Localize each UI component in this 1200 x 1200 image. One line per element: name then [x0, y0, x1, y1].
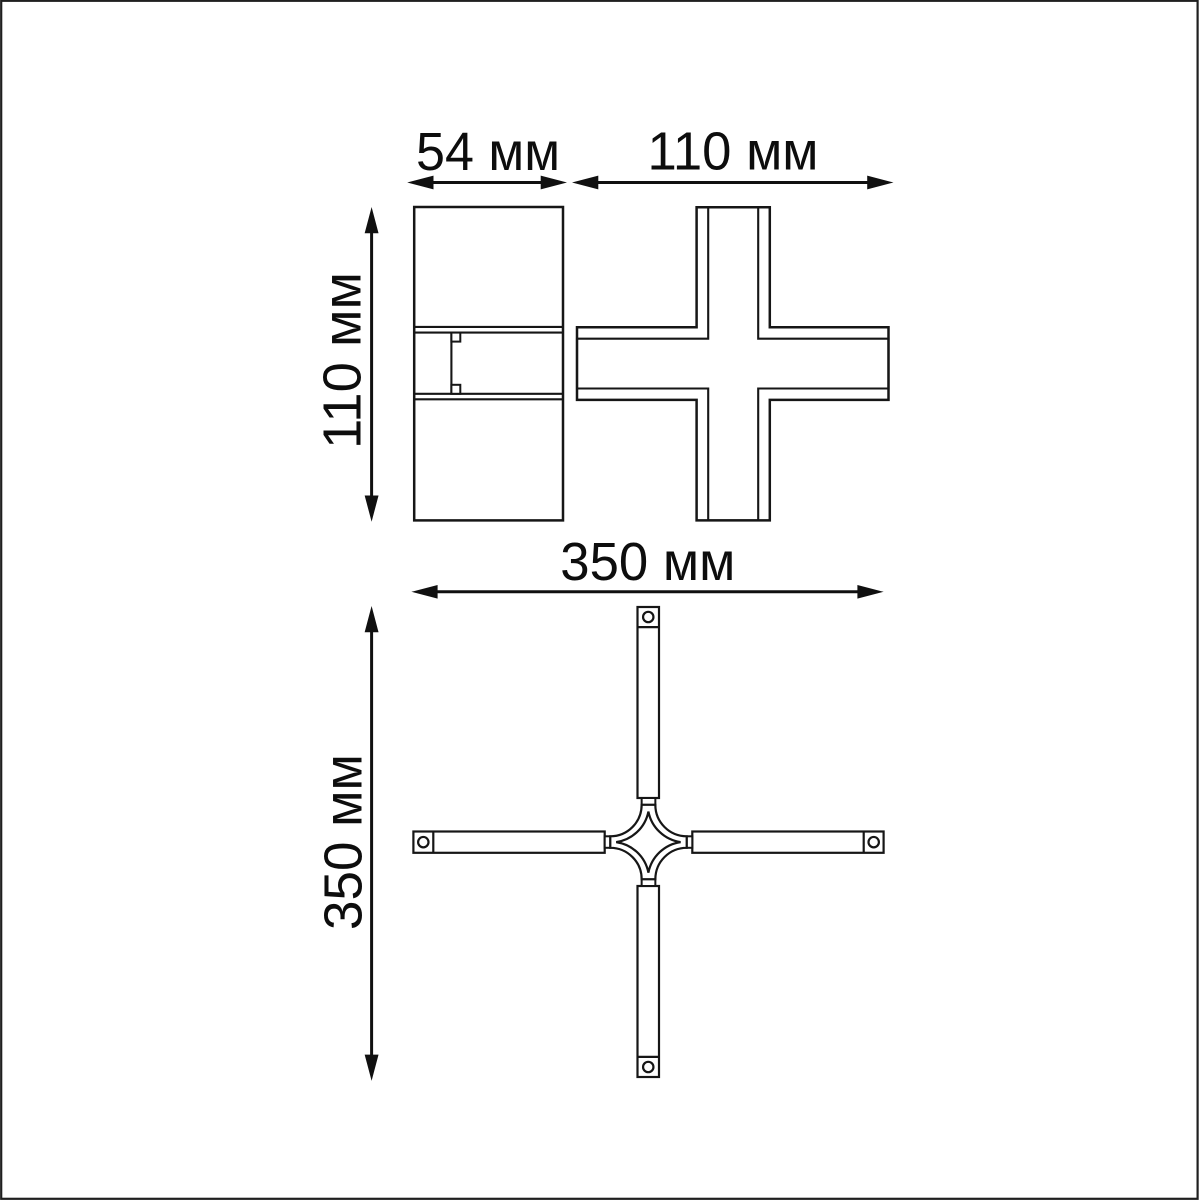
svg-text:350 мм: 350 мм: [314, 754, 374, 930]
svg-text:110 мм: 110 мм: [648, 122, 819, 182]
svg-text:350 мм: 350 мм: [560, 532, 735, 592]
svg-text:110 мм: 110 мм: [313, 272, 373, 449]
svg-text:54 мм: 54 мм: [416, 122, 560, 182]
